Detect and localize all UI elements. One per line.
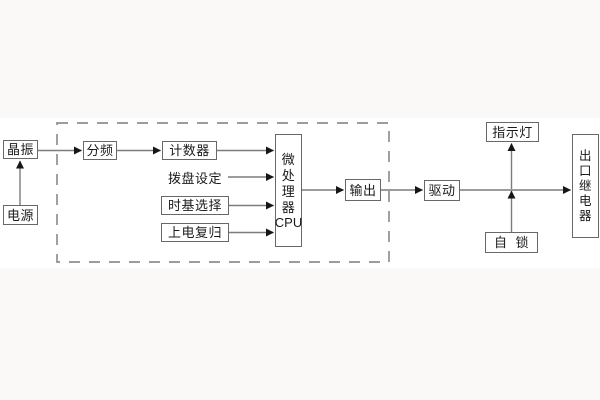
outlet-relay-box: 出 口 继 电 器 — [572, 134, 599, 238]
drive-label: 驱动 — [428, 184, 455, 197]
mcu-char-2: 处 — [282, 168, 296, 184]
crystal-oscillator-label: 晶振 — [7, 143, 34, 156]
diagram-canvas: 晶振 电源 分频 计数器 拨盘设定 时基选择 上电复归 微 处 理 器 CPU … — [0, 0, 600, 400]
indicator-light-box: 指示灯 — [486, 122, 539, 142]
power-supply-box: 电源 — [3, 205, 38, 225]
relay-char-3: 继 — [579, 179, 592, 194]
power-on-reset-label: 上电复归 — [168, 226, 222, 239]
mcu-char-4: 器 — [282, 200, 296, 216]
counter-box: 计数器 — [162, 141, 217, 160]
mcu-cpu-label: CPU — [275, 216, 302, 229]
frequency-divider-box: 分频 — [83, 141, 117, 160]
frequency-divider-label: 分频 — [86, 144, 113, 157]
counter-label: 计数器 — [169, 144, 210, 157]
self-lock-label: 自 锁 — [494, 236, 529, 249]
timebase-select-label: 时基选择 — [168, 199, 222, 212]
relay-char-1: 出 — [579, 149, 592, 164]
mcu-char-1: 微 — [282, 152, 296, 168]
power-supply-label: 电源 — [7, 209, 34, 222]
mcu-char-3: 理 — [282, 184, 296, 200]
power-on-reset-box: 上电复归 — [161, 223, 229, 242]
output-box: 输出 — [345, 179, 381, 201]
crystal-oscillator-box: 晶振 — [3, 140, 38, 159]
microprocessor-cpu-box: 微 处 理 器 CPU — [275, 134, 302, 247]
drive-box: 驱动 — [424, 180, 460, 201]
timebase-select-box: 时基选择 — [161, 196, 229, 215]
output-label: 输出 — [349, 184, 376, 197]
self-lock-box: 自 锁 — [485, 232, 538, 253]
relay-char-5: 器 — [579, 209, 592, 224]
indicator-light-label: 指示灯 — [492, 126, 533, 139]
relay-char-4: 电 — [579, 194, 592, 209]
relay-char-2: 口 — [579, 164, 592, 179]
dial-setting-label: 拨盘设定 — [166, 170, 224, 184]
